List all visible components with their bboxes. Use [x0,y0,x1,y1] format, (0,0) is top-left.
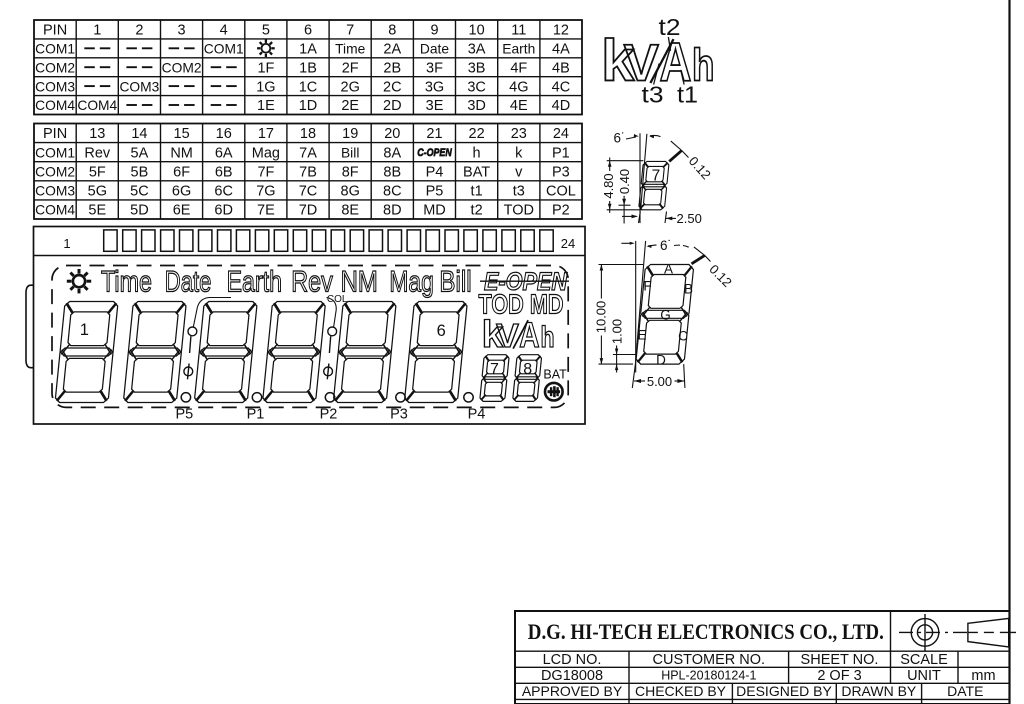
svg-text:G: G [660,308,671,323]
svg-text:1: 1 [63,236,70,251]
svg-text:P2: P2 [320,407,338,423]
svg-text:1B: 1B [299,61,317,77]
svg-text:4D: 4D [552,98,571,114]
svg-text:Time: Time [101,266,152,299]
svg-text:V: V [496,317,519,355]
svg-text:LCD NO.: LCD NO. [543,652,602,668]
svg-text:7A: 7A [299,145,317,161]
svg-text:5B: 5B [131,164,149,180]
svg-text:t3: t3 [642,82,664,108]
svg-text:13: 13 [89,126,105,142]
svg-text:D.G. HI-TECH ELECTRONICS CO: D.G. HI-TECH ELECTRONICS CO., LTD. [528,619,884,644]
svg-text:7: 7 [490,361,499,378]
svg-text:2A: 2A [383,42,401,58]
svg-text:8: 8 [388,23,396,39]
svg-text:BAT: BAT [543,367,567,381]
svg-text:Rev: Rev [84,145,111,161]
svg-text:3G: 3G [425,79,444,95]
svg-text:14: 14 [131,126,147,142]
svg-text:2F: 2F [342,61,359,77]
svg-text:2D: 2D [383,98,402,114]
svg-text:Date: Date [420,42,449,57]
svg-text:P1: P1 [247,407,265,423]
svg-text:7G: 7G [256,184,275,200]
svg-text:8C: 8C [383,184,402,200]
svg-text:COM4: COM4 [35,203,75,218]
svg-text:4G: 4G [509,79,528,95]
svg-text:h: h [541,322,555,354]
svg-text:3E: 3E [426,98,444,114]
svg-text:P5: P5 [176,407,194,423]
svg-text:1E: 1E [257,98,275,114]
svg-text:6B: 6B [215,164,233,180]
svg-text:t2: t2 [659,14,681,40]
svg-text:8A: 8A [383,145,401,161]
svg-text:7D: 7D [299,203,318,219]
svg-text:5D: 5D [130,203,149,219]
svg-text:20: 20 [384,126,400,142]
svg-text:COM4: COM4 [77,98,117,113]
svg-text:24: 24 [561,236,575,251]
svg-text:8G: 8G [341,184,360,200]
svg-text:3: 3 [178,23,186,39]
svg-text:3D: 3D [467,98,486,114]
svg-text:16: 16 [216,126,232,142]
svg-text:4C: 4C [552,79,571,95]
svg-text:23: 23 [511,126,527,142]
svg-text:COM2: COM2 [162,61,202,76]
svg-text:2.50: 2.50 [677,211,702,226]
svg-text:P2: P2 [552,203,570,219]
svg-text:DG18008: DG18008 [541,668,603,684]
svg-text:P4: P4 [468,407,486,423]
svg-text:6˙: 6˙ [614,131,626,146]
svg-text:NM: NM [170,145,193,161]
svg-text:15: 15 [174,126,190,142]
svg-text:2G: 2G [341,79,360,95]
svg-text:C: C [678,329,688,344]
svg-text:Bill: Bill [439,266,471,299]
svg-text:1.00: 1.00 [609,319,624,344]
svg-text:DRAWN BY: DRAWN BY [841,683,917,699]
svg-text:Mag: Mag [252,145,280,161]
svg-text:6: 6 [437,322,446,340]
svg-text:6C: 6C [214,184,233,200]
svg-text:22: 22 [469,126,485,142]
svg-text:10.00: 10.00 [594,301,609,334]
svg-text:P4: P4 [426,164,444,180]
svg-text:6A: 6A [215,145,233,161]
svg-text:Earth: Earth [502,42,535,57]
svg-text:11: 11 [511,23,526,39]
svg-text:1G: 1G [256,79,275,95]
svg-text:10: 10 [469,23,485,39]
svg-text:7F: 7F [257,164,274,180]
svg-text:4B: 4B [552,61,570,77]
svg-text:1F: 1F [257,61,274,77]
svg-text:6E: 6E [173,203,191,219]
svg-text:6D: 6D [214,203,233,219]
svg-text:SHEET NO.: SHEET NO. [801,652,879,668]
svg-text:7B: 7B [299,164,317,180]
svg-text:COM3: COM3 [119,79,159,94]
svg-text:Time: Time [335,42,365,57]
svg-text:v: v [515,164,523,180]
svg-text:COM3: COM3 [35,184,75,199]
svg-text:UNIT: UNIT [907,668,941,684]
svg-text:mm: mm [971,668,995,684]
svg-text:7E: 7E [257,203,275,219]
svg-text:21: 21 [426,126,442,142]
svg-text:7: 7 [346,23,354,39]
svg-text:CUSTOMER NO.: CUSTOMER NO. [653,652,766,668]
svg-text:1: 1 [80,321,89,339]
svg-text:2C: 2C [383,79,402,95]
svg-text:t2: t2 [471,203,483,219]
svg-text:2: 2 [135,23,143,39]
svg-text:19: 19 [342,126,358,142]
svg-text:COM3: COM3 [35,79,75,94]
svg-text:TOD: TOD [504,203,534,219]
svg-text:PIN: PIN [43,126,67,142]
svg-text:Date: Date [165,266,212,299]
svg-text:1C: 1C [299,79,318,95]
svg-text:8: 8 [523,361,532,378]
svg-text:0.40: 0.40 [617,169,632,194]
svg-text:5F: 5F [89,164,106,180]
svg-text:B: B [684,282,693,297]
svg-text:8F: 8F [342,164,359,180]
svg-text:SCALE: SCALE [900,652,948,668]
svg-text:COM2: COM2 [35,164,75,179]
svg-text:4.80: 4.80 [601,173,616,198]
svg-text:5G: 5G [88,184,107,200]
svg-text:8D: 8D [383,203,402,219]
svg-text:6: 6 [304,23,312,39]
svg-text:DESIGNED BY: DESIGNED BY [736,683,832,699]
svg-text:1D: 1D [299,98,318,114]
svg-text:8E: 8E [341,203,359,219]
svg-text:5A: 5A [131,145,149,161]
svg-text:4E: 4E [510,98,528,114]
svg-text:18: 18 [300,126,316,142]
svg-text:h: h [473,145,481,161]
svg-text:t1: t1 [677,82,698,108]
svg-text:2B: 2B [383,61,401,77]
svg-text:t1: t1 [471,184,483,200]
svg-text:6G: 6G [172,184,191,200]
svg-text:4: 4 [220,23,228,39]
svg-text:E: E [637,328,646,343]
svg-text:12: 12 [553,23,569,39]
svg-text:t3: t3 [513,184,525,200]
svg-text:4F: 4F [510,61,527,77]
svg-text:COL: COL [546,184,576,200]
svg-text:P3: P3 [390,407,408,423]
svg-text:5C: 5C [130,184,149,200]
svg-text:5E: 5E [88,203,106,219]
svg-text:3A: 3A [468,42,486,58]
svg-text:17: 17 [258,126,274,142]
svg-text:7C: 7C [299,184,318,200]
svg-text:A: A [664,262,673,277]
svg-text:Mag: Mag [389,266,433,299]
svg-text:5: 5 [262,23,270,39]
svg-text:1: 1 [93,23,101,39]
svg-text:k: k [515,145,523,161]
svg-text:BAT: BAT [463,164,490,180]
svg-text:7: 7 [652,168,661,185]
svg-text:A: A [519,315,539,355]
svg-text:CHECKED BY: CHECKED BY [635,683,727,699]
svg-text:2E: 2E [341,98,359,114]
svg-text:PIN: PIN [43,23,67,39]
svg-text:4A: 4A [552,42,570,58]
svg-text:3F: 3F [426,61,443,77]
svg-text:8B: 8B [383,164,401,180]
svg-text:9: 9 [430,23,438,39]
svg-text:3B: 3B [468,61,486,77]
svg-text:1A: 1A [299,42,317,58]
svg-text:COM1: COM1 [35,42,75,57]
svg-text:COM4: COM4 [35,98,75,113]
svg-text:D: D [656,353,666,368]
svg-text:5.00: 5.00 [647,374,672,389]
svg-text:COM2: COM2 [35,61,75,76]
svg-text:Earth: Earth [227,266,282,299]
svg-text:APPROVED BY: APPROVED BY [522,683,623,699]
svg-text:C-OPEN: C-OPEN [417,147,452,159]
svg-text:COL: COL [327,294,348,305]
svg-text:MD: MD [423,203,446,219]
svg-text:COM1: COM1 [35,145,75,160]
svg-text:F: F [643,279,651,294]
svg-text:3C: 3C [467,79,486,95]
svg-text:P5: P5 [426,184,444,200]
svg-text:DATE: DATE [947,683,983,699]
svg-text:2 OF 3: 2 OF 3 [817,668,861,684]
svg-text:Bill: Bill [341,145,359,160]
svg-text:P1: P1 [552,145,570,161]
svg-text:COM1: COM1 [204,42,244,57]
svg-text:P3: P3 [552,164,570,180]
svg-text:HPL-20180124-1: HPL-20180124-1 [661,669,756,683]
svg-text:24: 24 [553,126,569,142]
svg-text:6˙: 6˙ [660,238,672,253]
svg-text:6F: 6F [173,164,190,180]
